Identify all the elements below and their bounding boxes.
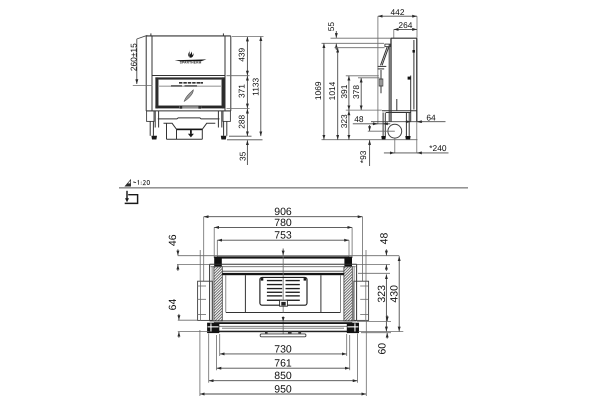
svg-text:753: 753 (274, 230, 292, 242)
svg-text:442: 442 (391, 7, 405, 17)
svg-text:761: 761 (274, 358, 292, 370)
svg-text:439: 439 (237, 47, 247, 61)
svg-text:1133: 1133 (250, 77, 260, 95)
svg-text:730: 730 (274, 343, 292, 355)
svg-text:1069: 1069 (313, 81, 323, 100)
svg-text:SPARTHERM: SPARTHERM (180, 61, 202, 65)
svg-text:391: 391 (339, 84, 349, 98)
svg-text:371: 371 (237, 84, 247, 98)
svg-text:288: 288 (237, 114, 247, 128)
svg-text:*240: *240 (429, 143, 447, 153)
svg-text:60: 60 (376, 343, 388, 355)
svg-text:323: 323 (376, 285, 388, 303)
svg-text:48: 48 (354, 114, 364, 124)
svg-text:378: 378 (351, 85, 361, 99)
svg-text:780: 780 (274, 217, 292, 229)
svg-text:430: 430 (389, 285, 401, 303)
svg-text:35: 35 (238, 151, 248, 161)
svg-text:48: 48 (378, 233, 390, 245)
svg-text:264: 264 (398, 20, 412, 30)
svg-text:*93: *93 (358, 150, 368, 163)
svg-text:64: 64 (426, 112, 436, 122)
svg-text:1014: 1014 (327, 81, 337, 100)
svg-text:850: 850 (274, 370, 292, 382)
svg-text:950: 950 (274, 383, 292, 395)
svg-text:323: 323 (339, 114, 349, 128)
svg-text:64: 64 (167, 299, 179, 311)
svg-text:55: 55 (326, 22, 336, 32)
svg-text:46: 46 (167, 234, 179, 246)
svg-text:260±15: 260±15 (129, 43, 139, 71)
